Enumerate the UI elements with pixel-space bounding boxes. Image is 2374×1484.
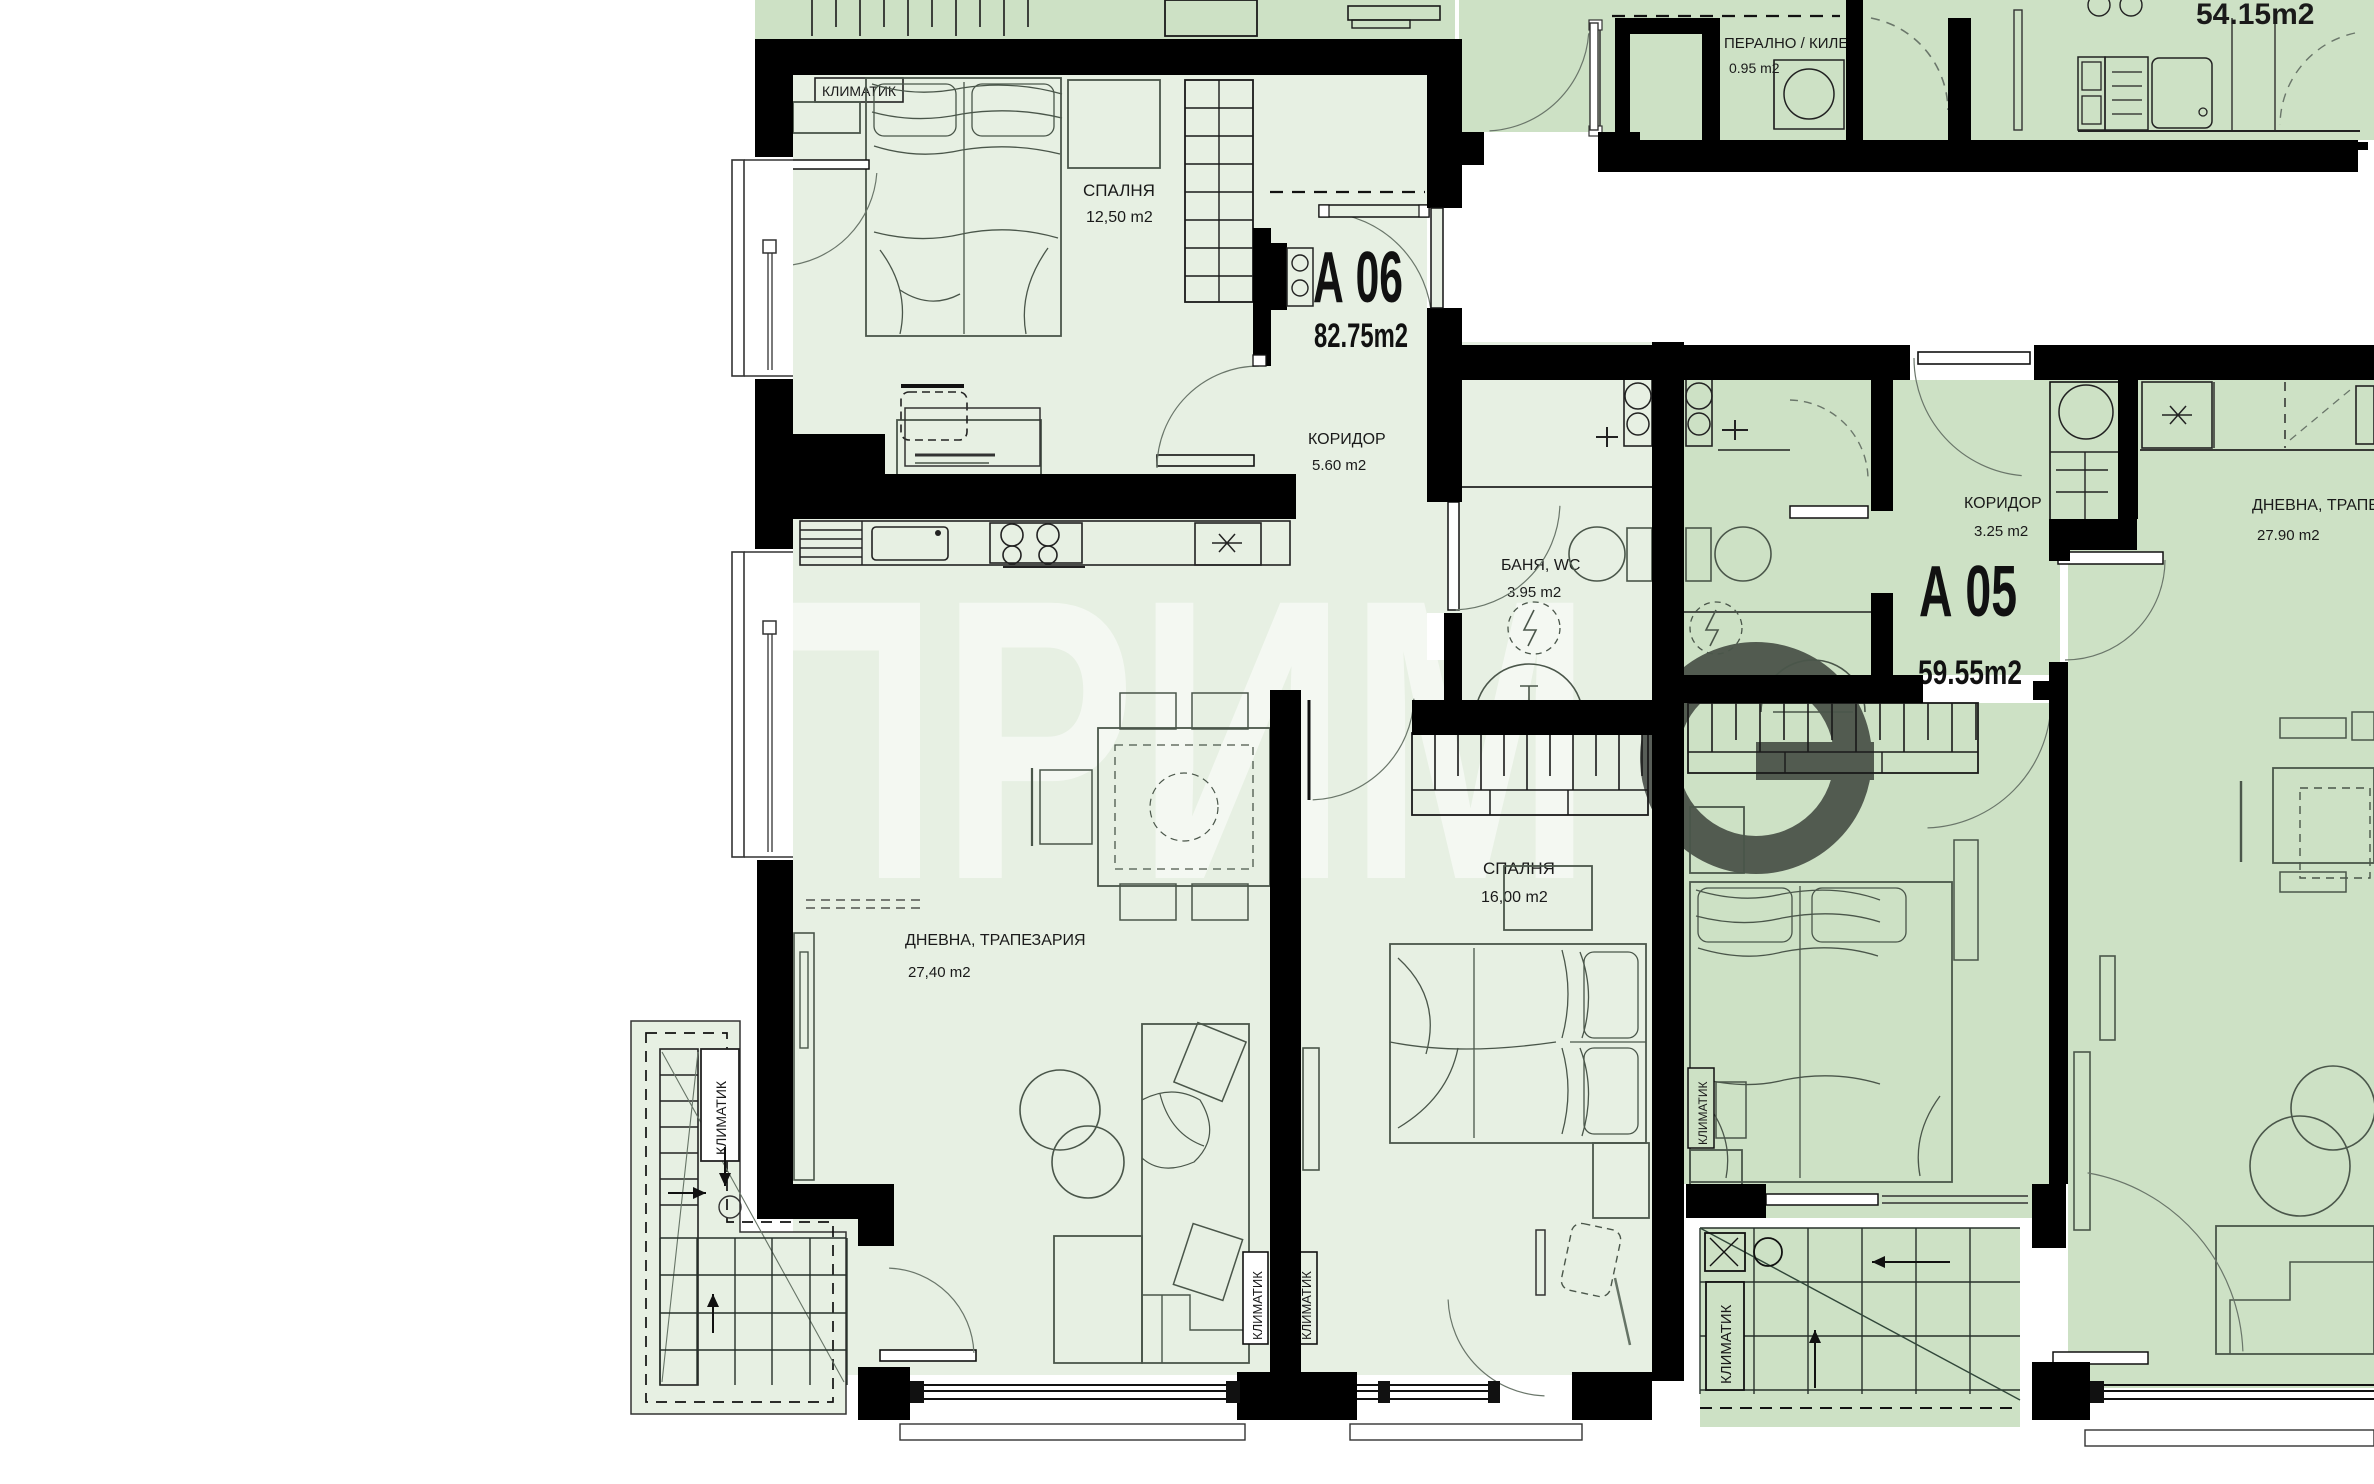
svg-text:КЛИМАТИК: КЛИМАТИК bbox=[1299, 1271, 1314, 1340]
svg-text:82.75m2: 82.75m2 bbox=[1314, 317, 1408, 355]
svg-text:ПРИМ: ПРИМ bbox=[728, 516, 1593, 963]
svg-text:27.90 m2: 27.90 m2 bbox=[2257, 527, 2320, 544]
svg-text:ПЕРАЛНО / КИЛЕР: ПЕРАЛНО / КИЛЕР bbox=[1724, 35, 1858, 52]
svg-text:КЛИМАТИК: КЛИМАТИК bbox=[1718, 1304, 1735, 1384]
svg-text:БАНЯ, WC: БАНЯ, WC bbox=[1501, 557, 1580, 574]
svg-text:КОРИДОР: КОРИДОР bbox=[1964, 495, 2042, 512]
svg-text:КЛИМАТИК: КЛИМАТИК bbox=[822, 83, 897, 99]
svg-text:СПАЛНЯ: СПАЛНЯ bbox=[1083, 181, 1155, 200]
svg-text:КЛИМАТИК: КЛИМАТИК bbox=[713, 1080, 729, 1155]
svg-text:КЛИМАТИК: КЛИМАТИК bbox=[1696, 1081, 1710, 1145]
svg-text:12,50 m2: 12,50 m2 bbox=[1086, 209, 1153, 226]
svg-text:А 06: А 06 bbox=[1313, 238, 1403, 318]
svg-text:0.95 m2: 0.95 m2 bbox=[1729, 60, 1780, 76]
svg-text:КЛИМАТИК: КЛИМАТИК bbox=[1250, 1271, 1265, 1340]
svg-text:54.15m2: 54.15m2 bbox=[2196, 0, 2314, 31]
svg-text:КОРИДОР: КОРИДОР bbox=[1308, 431, 1386, 448]
svg-text:16,00 m2: 16,00 m2 bbox=[1481, 889, 1548, 906]
svg-text:5.60 m2: 5.60 m2 bbox=[1312, 457, 1366, 474]
svg-text:А 05: А 05 bbox=[1919, 552, 2017, 632]
svg-text:3.95 m2: 3.95 m2 bbox=[1507, 584, 1561, 601]
svg-text:27,40 m2: 27,40 m2 bbox=[908, 964, 971, 981]
svg-text:59.55m2: 59.55m2 bbox=[1918, 654, 2022, 692]
svg-text:СПАЛНЯ: СПАЛНЯ bbox=[1483, 859, 1555, 878]
svg-text:ДНЕВНА, ТРАПЕЗАРИЯ: ДНЕВНА, ТРАПЕЗАРИЯ bbox=[2252, 497, 2374, 514]
svg-text:ДНЕВНА, ТРАПЕЗАРИЯ: ДНЕВНА, ТРАПЕЗАРИЯ bbox=[905, 932, 1086, 949]
svg-text:3.25 m2: 3.25 m2 bbox=[1974, 523, 2028, 540]
